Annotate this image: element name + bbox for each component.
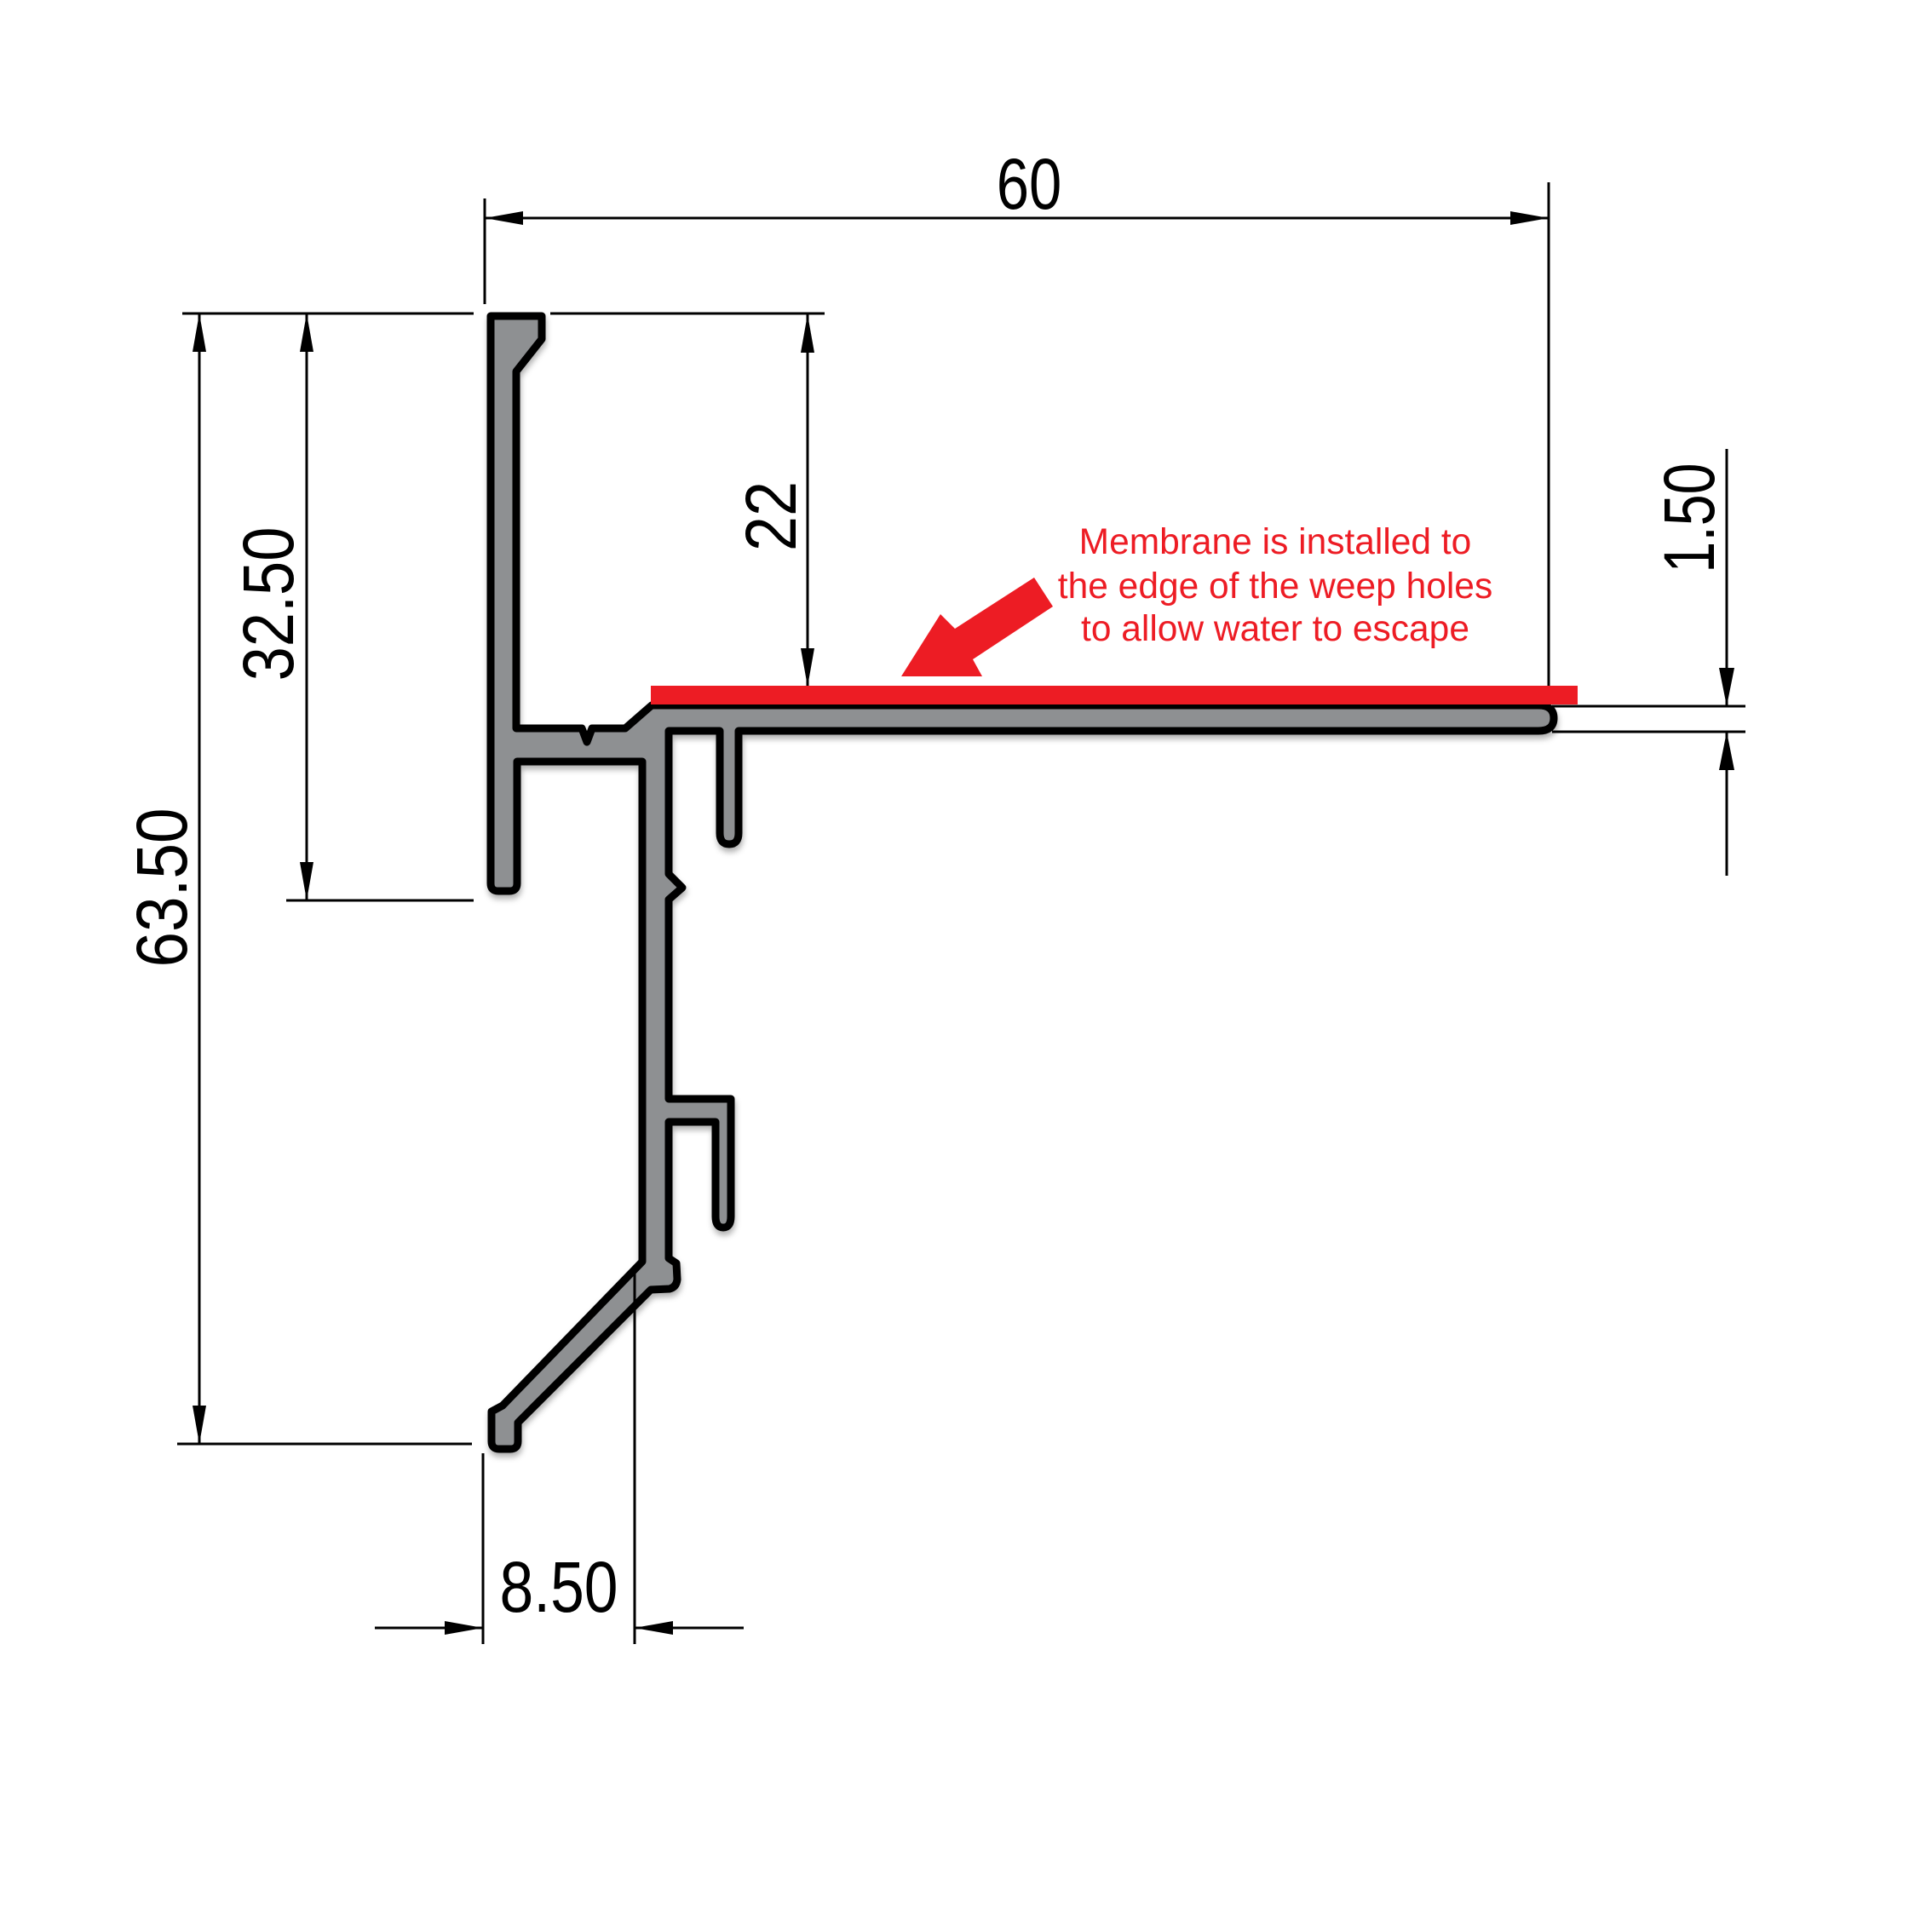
- svg-text:63.50: 63.50: [122, 808, 202, 967]
- svg-text:1.50: 1.50: [1650, 463, 1730, 572]
- svg-text:8.50: 8.50: [500, 1546, 618, 1627]
- svg-text:the edge of the weep holes: the edge of the weep holes: [1058, 566, 1492, 607]
- svg-text:32.50: 32.50: [228, 527, 308, 681]
- svg-text:Membrane is installed to: Membrane is installed to: [1079, 522, 1472, 562]
- svg-text:60: 60: [997, 145, 1062, 225]
- svg-text:22: 22: [731, 481, 811, 551]
- svg-text:to allow water to escape: to allow water to escape: [1081, 609, 1469, 649]
